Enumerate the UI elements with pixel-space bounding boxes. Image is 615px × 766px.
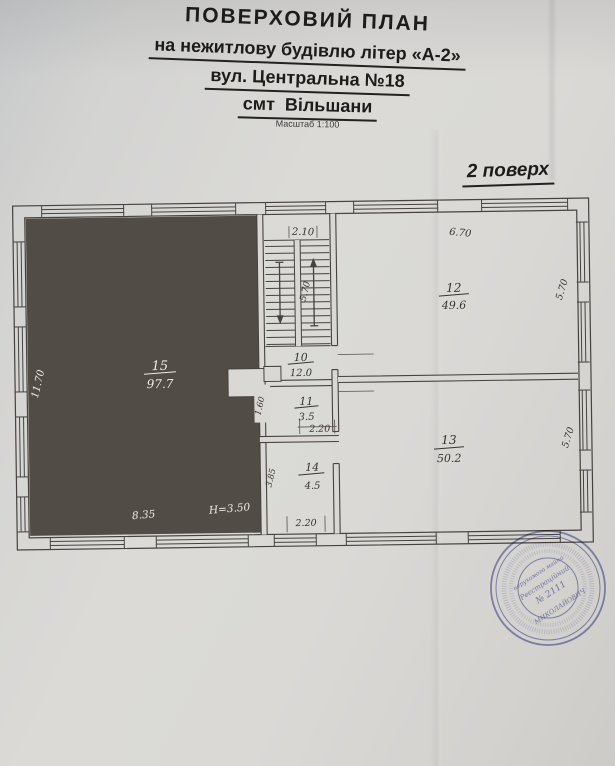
room-11-area: 3.5 xyxy=(299,412,315,423)
floor-plan-svg: 15 97.7 12 49.6 13 50.2 10 12.0 11 xyxy=(12,194,595,560)
dim-top-middle: 2.10 xyxy=(291,227,315,238)
registration-stamp: нерухомого майна Реєстраційний № 2111 МИ… xyxy=(468,508,615,668)
room-13-area: 50.2 xyxy=(437,452,462,465)
room-15-number: 15 xyxy=(151,359,168,374)
room-14-number: 14 xyxy=(305,461,319,474)
room-14-area: 4.5 xyxy=(303,481,320,492)
floor-plan-drawing: 15 97.7 12 49.6 13 50.2 10 12.0 11 xyxy=(12,194,595,560)
room-13-number: 13 xyxy=(441,433,457,447)
room-10-label: 10 12.0 xyxy=(288,351,314,379)
scanned-floor-plan-page: ПОВЕРХОВИЙ ПЛАН на нежитлову будівлю літ… xyxy=(0,0,615,766)
room-10-area: 12.0 xyxy=(290,368,313,379)
room-15-fill xyxy=(26,216,261,536)
dim-room11-width: 2.20 xyxy=(308,424,330,435)
dim-right-room13: 5.70 xyxy=(560,426,577,449)
room-15-area: 97.7 xyxy=(147,377,174,391)
dim-right-room12: 5.70 xyxy=(554,278,571,301)
room-12-number: 12 xyxy=(446,281,461,295)
stamp-rings xyxy=(491,531,605,645)
room-12-label: 12 49.6 xyxy=(439,281,469,312)
interior-walls xyxy=(226,210,580,535)
room-11-label: 11 3.5 xyxy=(294,395,318,423)
dim-bottom-room15: 8.35 xyxy=(132,508,157,522)
floor-label: 2 поверх xyxy=(448,158,569,188)
staircase xyxy=(264,240,330,347)
door-leaf xyxy=(264,366,281,381)
dim-room14-width: 2.20 xyxy=(294,518,316,529)
stair-arrow-down xyxy=(275,262,284,320)
dim-top-right: 6.70 xyxy=(449,227,473,240)
room-12-area: 49.6 xyxy=(441,299,467,312)
room-14-label: 14 4.5 xyxy=(298,461,324,492)
room-13-label: 13 50.2 xyxy=(434,433,464,465)
